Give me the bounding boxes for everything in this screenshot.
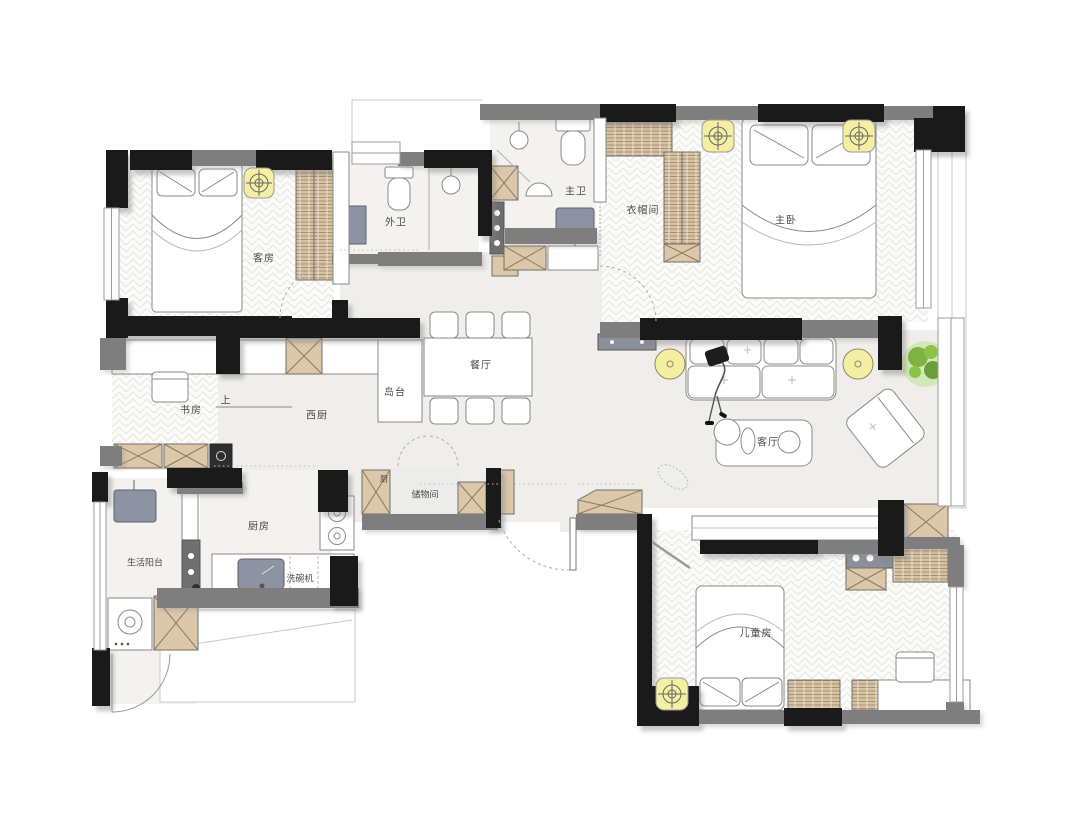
closet-wardrobe-top <box>600 122 672 156</box>
floor-plan: 客房 外卫 主卫 衣帽间 主卧 餐厅 岛台 书房 上 西厨 客厅 厨房 洗碗机 … <box>0 0 1080 825</box>
light-kids-room <box>656 678 688 710</box>
light-master-bedroom <box>843 120 875 152</box>
study-chair <box>152 372 188 402</box>
kitchen-sink <box>238 559 284 589</box>
study-appliance <box>210 444 232 468</box>
storage-cabinet-narrow <box>500 470 514 514</box>
kids-desk-chair <box>896 652 934 682</box>
floor-lamp-right <box>843 349 873 379</box>
window-guest-left <box>104 208 119 300</box>
window-living-right <box>938 318 964 506</box>
light-guest-room <box>244 168 274 198</box>
coffee-table <box>714 419 812 466</box>
divider-wall-upper <box>182 488 198 540</box>
master-bath-toilet <box>556 119 590 165</box>
kids-wardrobe-1 <box>788 680 840 710</box>
light-closet-entry <box>702 120 734 152</box>
floor-lamp-left <box>655 349 685 379</box>
window-balcony-left <box>94 502 106 650</box>
guest-bed <box>152 164 242 312</box>
floor-plan-drawing <box>0 0 1080 825</box>
dining-table <box>424 338 532 396</box>
divider-knob-column <box>182 540 200 592</box>
vanity-counter <box>548 246 598 270</box>
kids-bed <box>696 586 784 710</box>
window-guestbath-top <box>352 142 400 164</box>
island-counter <box>378 340 422 422</box>
west-kitchen-counter <box>112 340 420 374</box>
window-master-right <box>916 150 931 308</box>
washing-machine <box>108 598 152 650</box>
guest-bath-toilet <box>385 167 413 210</box>
storage-floor <box>392 468 460 514</box>
exterior-line-top <box>352 100 482 148</box>
sofa <box>686 336 836 400</box>
window-kids-right <box>950 587 963 702</box>
kids-wardrobe-2 <box>852 680 878 710</box>
